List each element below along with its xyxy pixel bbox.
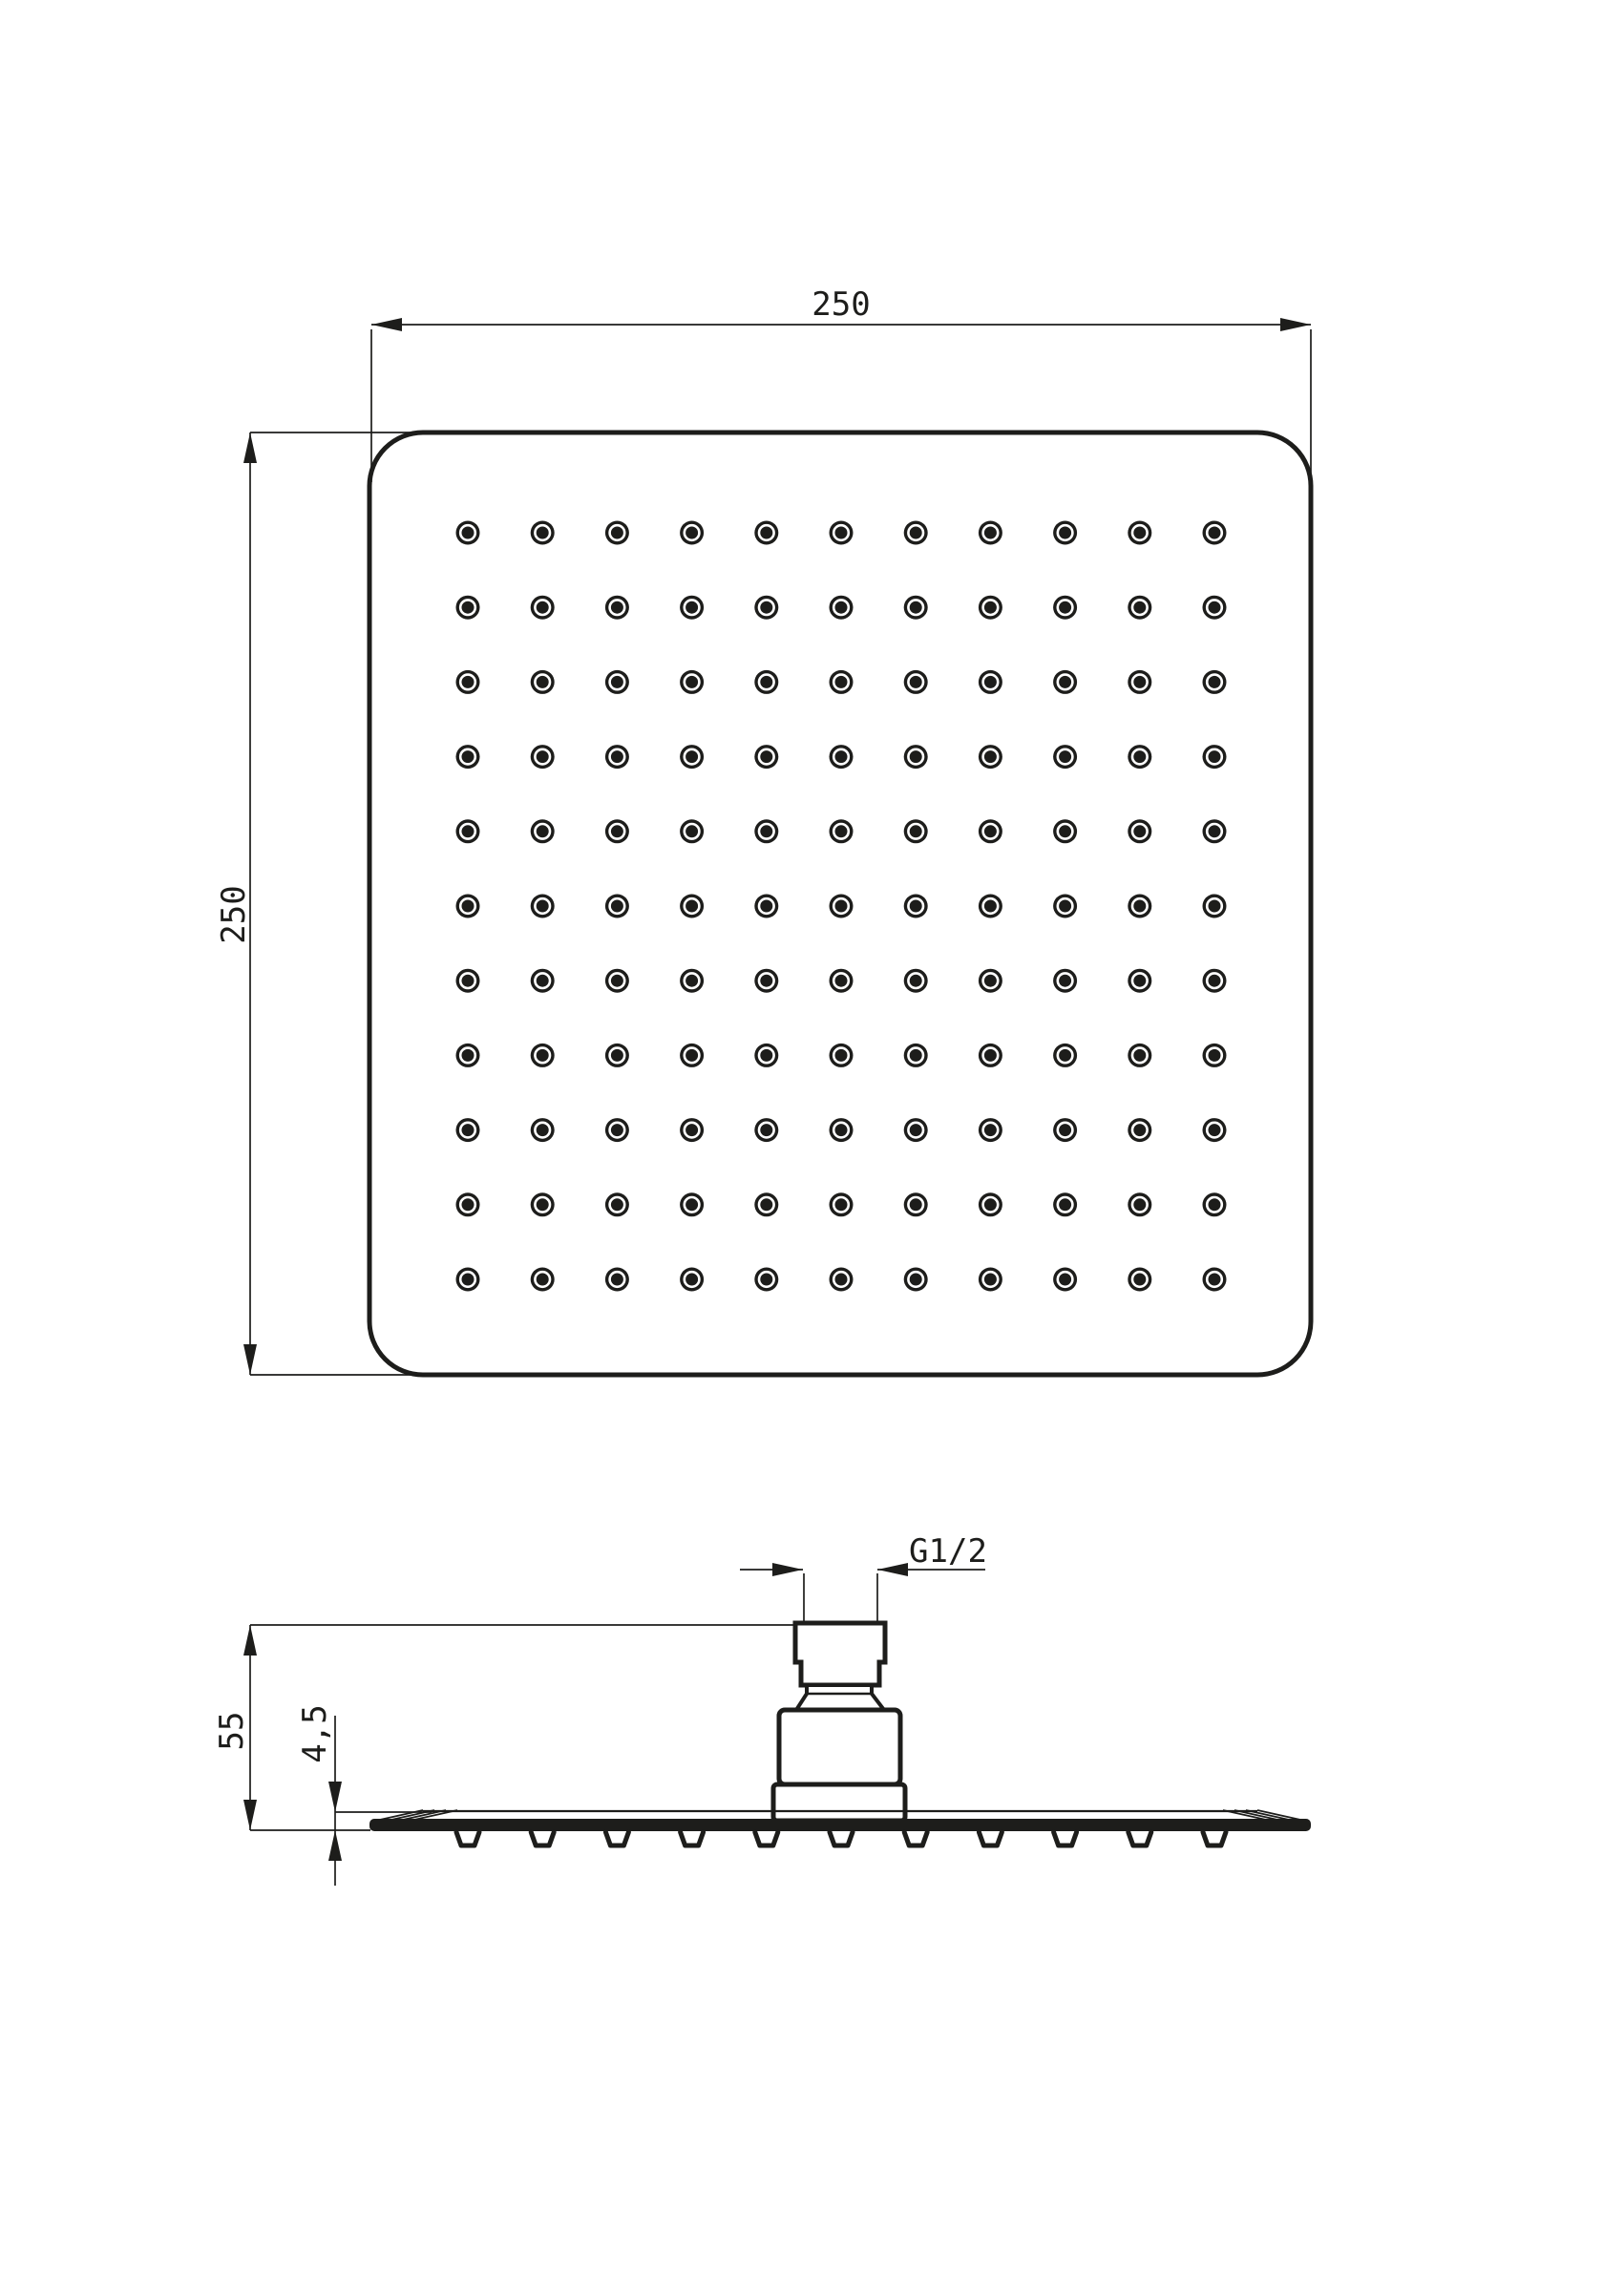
nozzle-tip <box>605 1832 628 1846</box>
arrowhead-left <box>877 1563 908 1576</box>
nozzle-tip <box>1054 1832 1077 1846</box>
dimension-label-width: 250 <box>812 285 870 324</box>
connector-body <box>779 1710 900 1784</box>
arrowhead-down <box>243 1800 257 1830</box>
nozzle-tip <box>681 1832 704 1846</box>
nozzle-tip <box>830 1832 853 1846</box>
arrowhead-up <box>328 1830 342 1861</box>
top-view: 250 250 <box>215 285 1311 1375</box>
nozzle-tip <box>904 1832 927 1846</box>
drawing-sheet: 250 250 <box>0 0 1624 2278</box>
nozzle-tip <box>1128 1832 1151 1846</box>
dimension-plate-thickness: 4,5 <box>296 1704 432 1886</box>
dimension-label-thread: G1/2 <box>909 1532 987 1571</box>
arrowhead-down <box>328 1782 342 1812</box>
dimension-label-side-height: 55 <box>213 1712 251 1751</box>
arrowhead-left <box>371 318 402 331</box>
dimension-label-height: 250 <box>215 885 253 943</box>
arrowhead-right <box>772 1563 803 1576</box>
nozzle-tip <box>979 1832 1002 1846</box>
arrowhead-up <box>243 432 257 463</box>
plate-side-band <box>369 1819 1311 1831</box>
base-collar <box>773 1784 905 1821</box>
arrowhead-up <box>243 1625 257 1656</box>
arrowhead-down <box>243 1344 257 1375</box>
nozzle-tip <box>531 1832 554 1846</box>
shower-head-technical-drawing: 250 250 <box>0 0 1624 2278</box>
arrowhead-right <box>1280 318 1311 331</box>
thread-pipe <box>795 1623 885 1685</box>
connector-neck <box>796 1685 884 1710</box>
nozzle-tip <box>755 1832 778 1846</box>
nozzle-tip <box>456 1832 479 1846</box>
side-view: G1/2 55 4,5 <box>213 1532 1311 1886</box>
nozzle-tip <box>1203 1832 1226 1846</box>
dimension-label-plate-thickness: 4,5 <box>296 1704 334 1762</box>
dimension-thread: G1/2 <box>740 1532 987 1621</box>
nozzle-row <box>456 1832 1226 1846</box>
